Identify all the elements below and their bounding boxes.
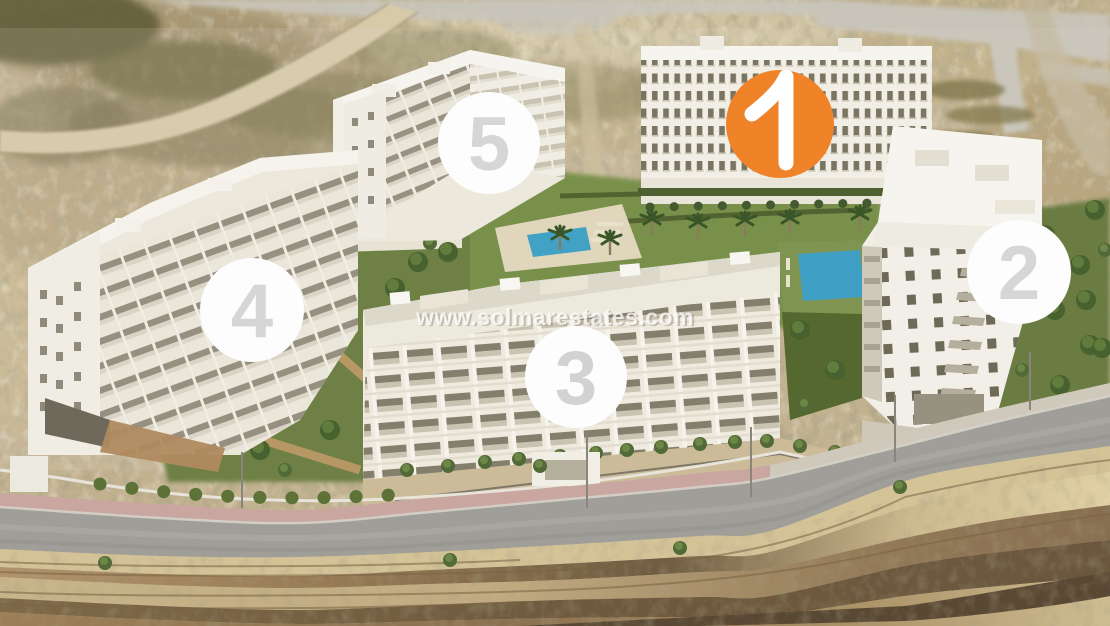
svg-text:4: 4	[231, 269, 273, 354]
svg-text:www.solmarestates.com: www.solmarestates.com	[415, 304, 694, 330]
svg-text:3: 3	[555, 336, 597, 421]
svg-text:2: 2	[998, 231, 1040, 316]
svg-text:5: 5	[468, 102, 510, 187]
